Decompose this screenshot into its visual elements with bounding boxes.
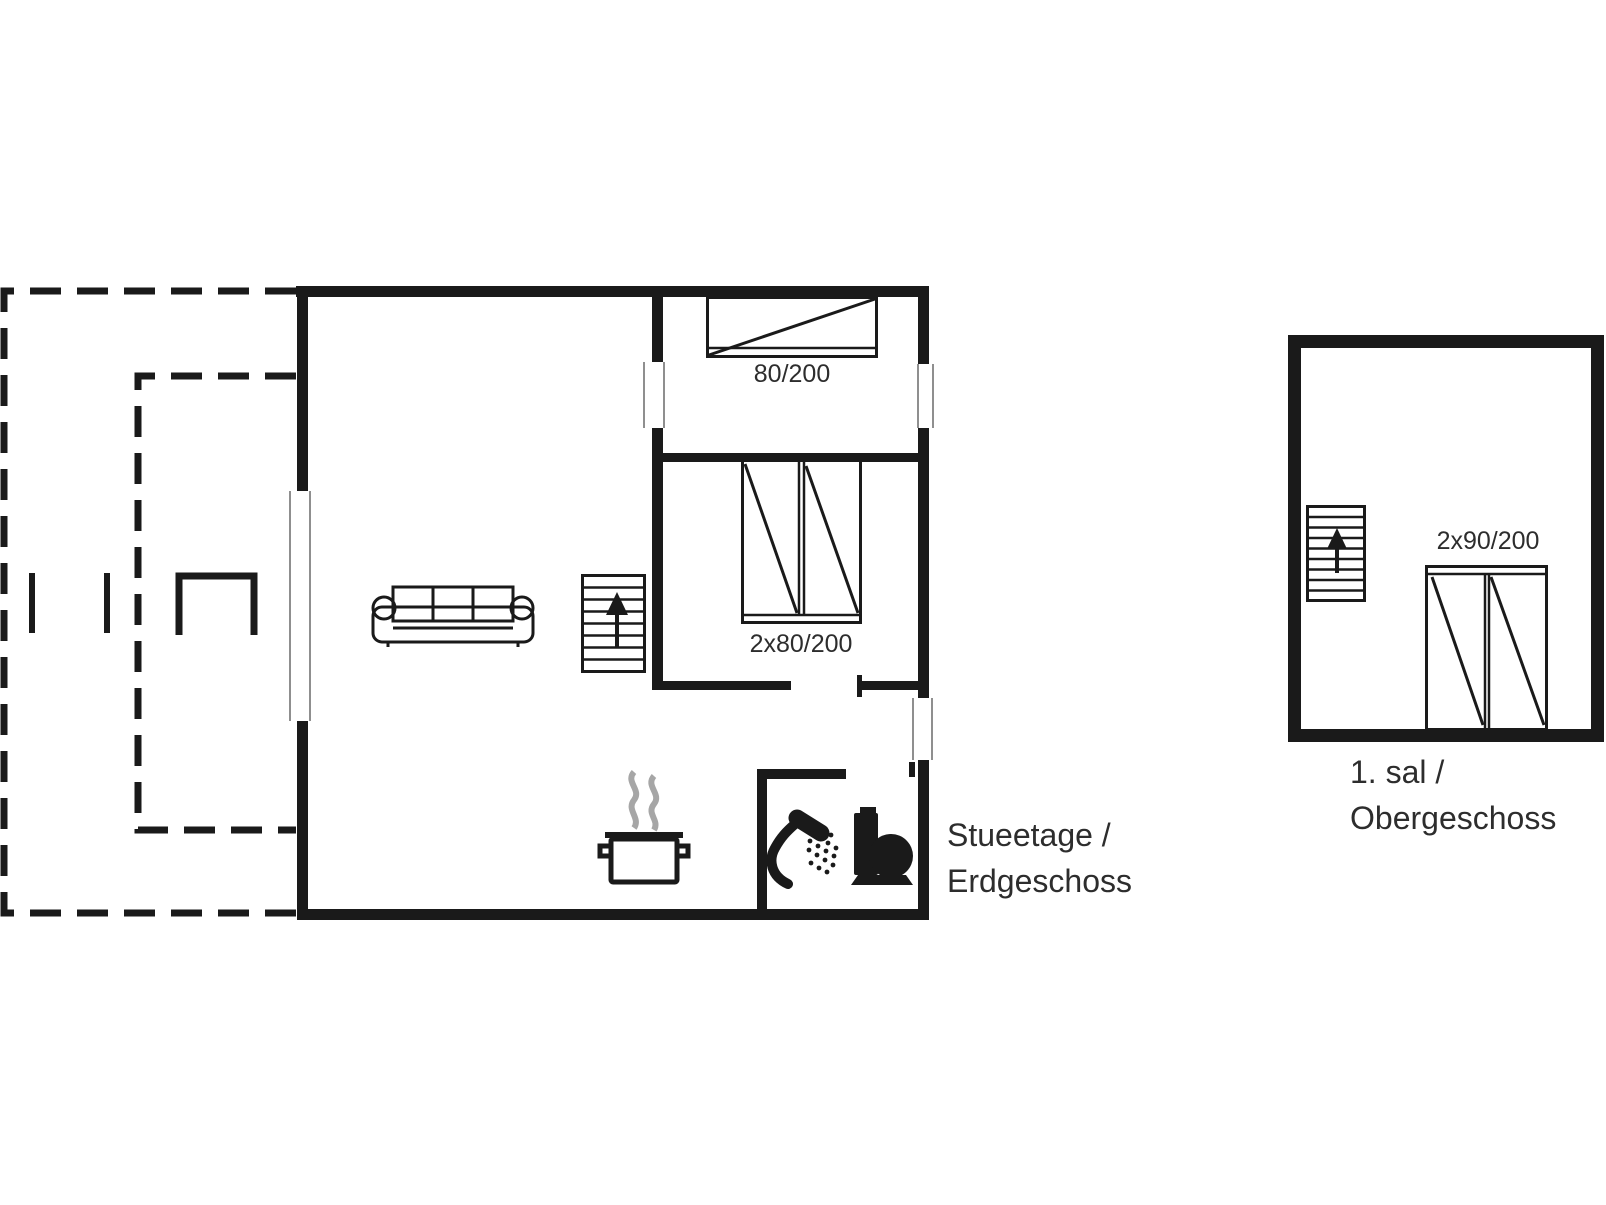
terrace-dashed-outline	[0, 0, 320, 960]
cooking-pot-icon	[592, 764, 696, 886]
ground-floor-caption: Stueetage / Erdgeschoss	[947, 812, 1132, 904]
door-jamb-entrance	[909, 762, 915, 777]
double-bed-icon	[741, 455, 862, 624]
door-frame-bedroom1	[643, 362, 645, 428]
window-frame-left	[309, 491, 311, 721]
interior-wall-bedroom-left-upper	[652, 286, 663, 362]
upper-wall-left	[1288, 335, 1301, 742]
upper-wall-top	[1288, 335, 1604, 348]
exterior-wall-left-lower	[297, 721, 308, 920]
door-frame-entrance	[931, 698, 933, 760]
upper-floor-caption-line2: Obergeschoss	[1350, 795, 1556, 841]
sofa-icon	[370, 585, 536, 649]
floor-plan-canvas: 80/200 2x80/200 Stueetage / Erdgeschoss	[0, 0, 1606, 1205]
double-bed-icon	[1425, 565, 1548, 731]
exterior-wall-right-middle	[918, 428, 929, 698]
upper-wall-right	[1591, 335, 1604, 742]
terrace-table-icon	[179, 576, 254, 635]
bed-size-label: 2x80/200	[701, 629, 901, 659]
shower-icon	[763, 808, 847, 890]
single-bed-icon	[706, 296, 878, 358]
ground-floor-caption-line2: Erdgeschoss	[947, 858, 1132, 904]
window-frame-right	[917, 364, 919, 428]
upper-floor-caption-line1: 1. sal /	[1350, 749, 1556, 795]
door-frame-bedroom1	[663, 362, 665, 428]
ground-floor-caption-line1: Stueetage /	[947, 812, 1132, 858]
door-jamb-bedroom2	[857, 675, 862, 697]
exterior-wall-left-upper	[297, 286, 308, 491]
interior-wall-bedroom2-bottom-right	[857, 681, 918, 690]
staircase-up-icon	[1306, 505, 1366, 602]
interior-wall-bedroom2-bottom-left	[652, 681, 791, 690]
bathroom-wall-top	[757, 769, 846, 779]
interior-wall-bedroom-left-lower	[652, 428, 663, 689]
toilet-icon	[848, 806, 916, 890]
exterior-wall-right-lower	[918, 760, 929, 920]
bed-size-label: 80/200	[692, 359, 892, 389]
exterior-wall-bottom	[297, 909, 929, 920]
bed-size-label: 2x90/200	[1388, 526, 1588, 556]
terrace-furniture-icon	[20, 565, 270, 645]
window-frame-right	[932, 364, 934, 428]
door-frame-entrance	[912, 698, 914, 760]
exterior-wall-right-upper	[918, 286, 929, 364]
upper-floor-caption: 1. sal / Obergeschoss	[1350, 749, 1556, 841]
window-frame-left	[289, 491, 291, 721]
steam-icon	[631, 772, 656, 830]
staircase-up-icon	[581, 574, 646, 673]
